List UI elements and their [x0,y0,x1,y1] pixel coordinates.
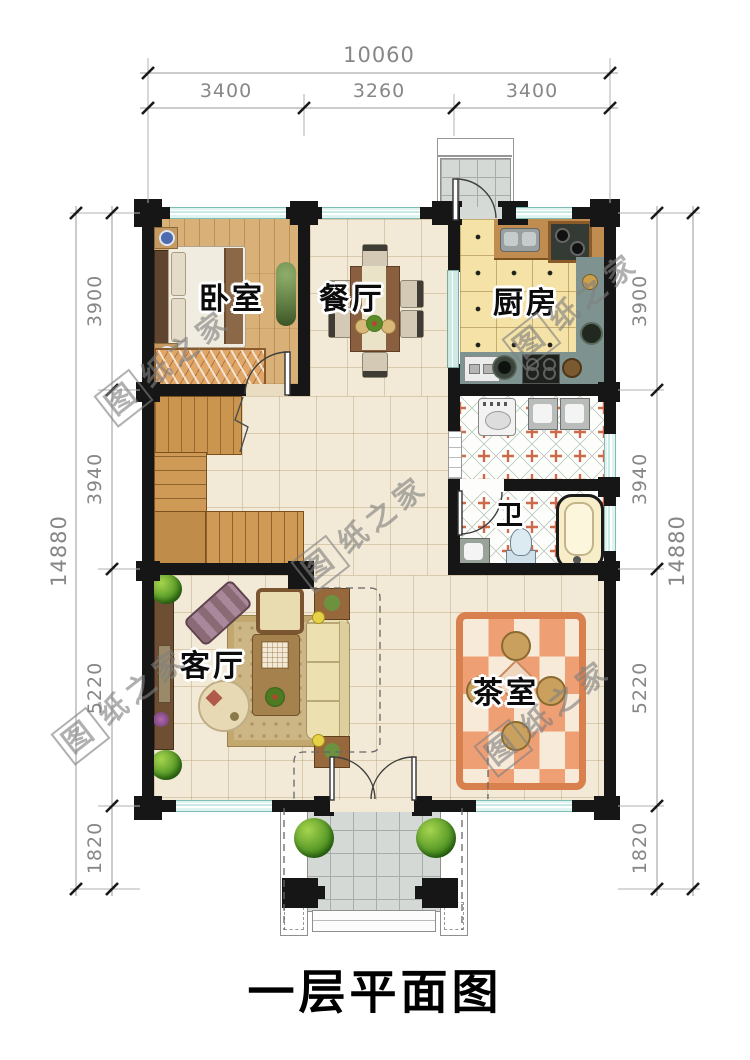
porch-column [422,878,458,908]
dim-right-seg-3: 5220 [629,662,651,714]
pillow [171,298,186,342]
dim-left-total: 14880 [47,515,71,587]
flower-pot [153,712,169,727]
tv-cabinet [154,598,174,750]
tea-window [476,800,572,812]
stair-upper-flight [154,396,242,455]
porch-bush [416,818,456,858]
dim-left-seg-3: 5220 [84,662,106,714]
kitchen-sink-round [492,355,517,380]
coffee-table [252,634,300,716]
dim-left-seg-1: 3900 [84,275,106,327]
floor-lamp [312,611,325,624]
bath-door-opening [460,479,504,491]
dim-left-seg-2: 3940 [84,453,106,505]
floor-lamp [312,734,325,747]
floor-cushion [536,676,566,706]
label-living: 客厅 [180,641,246,685]
wok [580,322,603,345]
stair-left-flight [154,452,207,514]
bedside-lamp [159,230,175,246]
laundry-sink [528,398,558,430]
kitchen-window [516,207,572,219]
kitchen-sink-double [500,228,540,252]
stair-bottom-flight [205,511,304,565]
wall-stair-bottom [142,563,304,575]
dim-right-seg-2: 3940 [629,453,651,505]
ottoman [198,680,250,732]
bowl [562,358,582,378]
pillow [171,252,186,296]
entrance-opening [330,800,414,812]
plate [381,319,396,334]
dim-top-seg-3: 3400 [506,80,558,102]
dim-top-total: 10060 [343,43,415,67]
bedroom-door-opening [246,384,288,396]
dim-top-seg-1: 3400 [200,80,252,102]
floor-plan-page: 10060 3400 3260 3400 3900 3940 5220 1820… [0,0,750,1060]
living-window [176,800,272,812]
bath-window [604,506,616,551]
label-bedroom: 卧室 [199,274,265,318]
armchair [256,588,304,634]
bathtub [556,494,604,570]
page-title: 一层平面图 [248,954,503,1023]
label-kitchen: 厨房 [493,278,559,322]
bath-sink [458,538,490,566]
kettle [582,274,598,290]
dim-left-seg-4: 1820 [84,822,106,874]
laundry-window [604,434,616,477]
floor-cushion [501,721,531,751]
wall-bedroom-right [298,207,310,396]
laundry-opening [448,431,462,479]
wall-bath-bottom [448,563,616,575]
dining-window [322,207,420,219]
gas-stove-4burner [522,354,560,384]
living-plant [150,750,182,780]
washing-machine [478,398,516,436]
label-bath: 卫 [496,494,526,533]
wall-kitchen-bottom [448,384,616,396]
wall-bath-left [448,477,460,575]
dim-right-seg-1: 3900 [629,275,651,327]
porch-step [312,910,436,932]
porch-column [282,878,318,908]
laundry-sink [560,398,590,430]
dim-top-seg-2: 3260 [353,80,405,102]
porch-bush [294,818,334,858]
rear-door-opening [460,207,502,219]
sofa [306,618,350,740]
wall-kitchen-left-lower [448,364,460,431]
bedroom-plant [276,262,296,326]
label-tea: 茶室 [473,668,539,712]
wardrobe [154,348,266,386]
dim-right-seg-4: 1820 [629,822,651,874]
wall-kitchen-left-upper [448,219,460,272]
bedroom-window [170,207,286,219]
kitchen-sliding-door [447,270,459,368]
floor-cushion [501,631,531,661]
dim-right-total: 14880 [665,515,689,587]
label-dining: 餐厅 [319,274,385,318]
stair-landing [154,511,207,565]
wall-left [142,207,154,812]
